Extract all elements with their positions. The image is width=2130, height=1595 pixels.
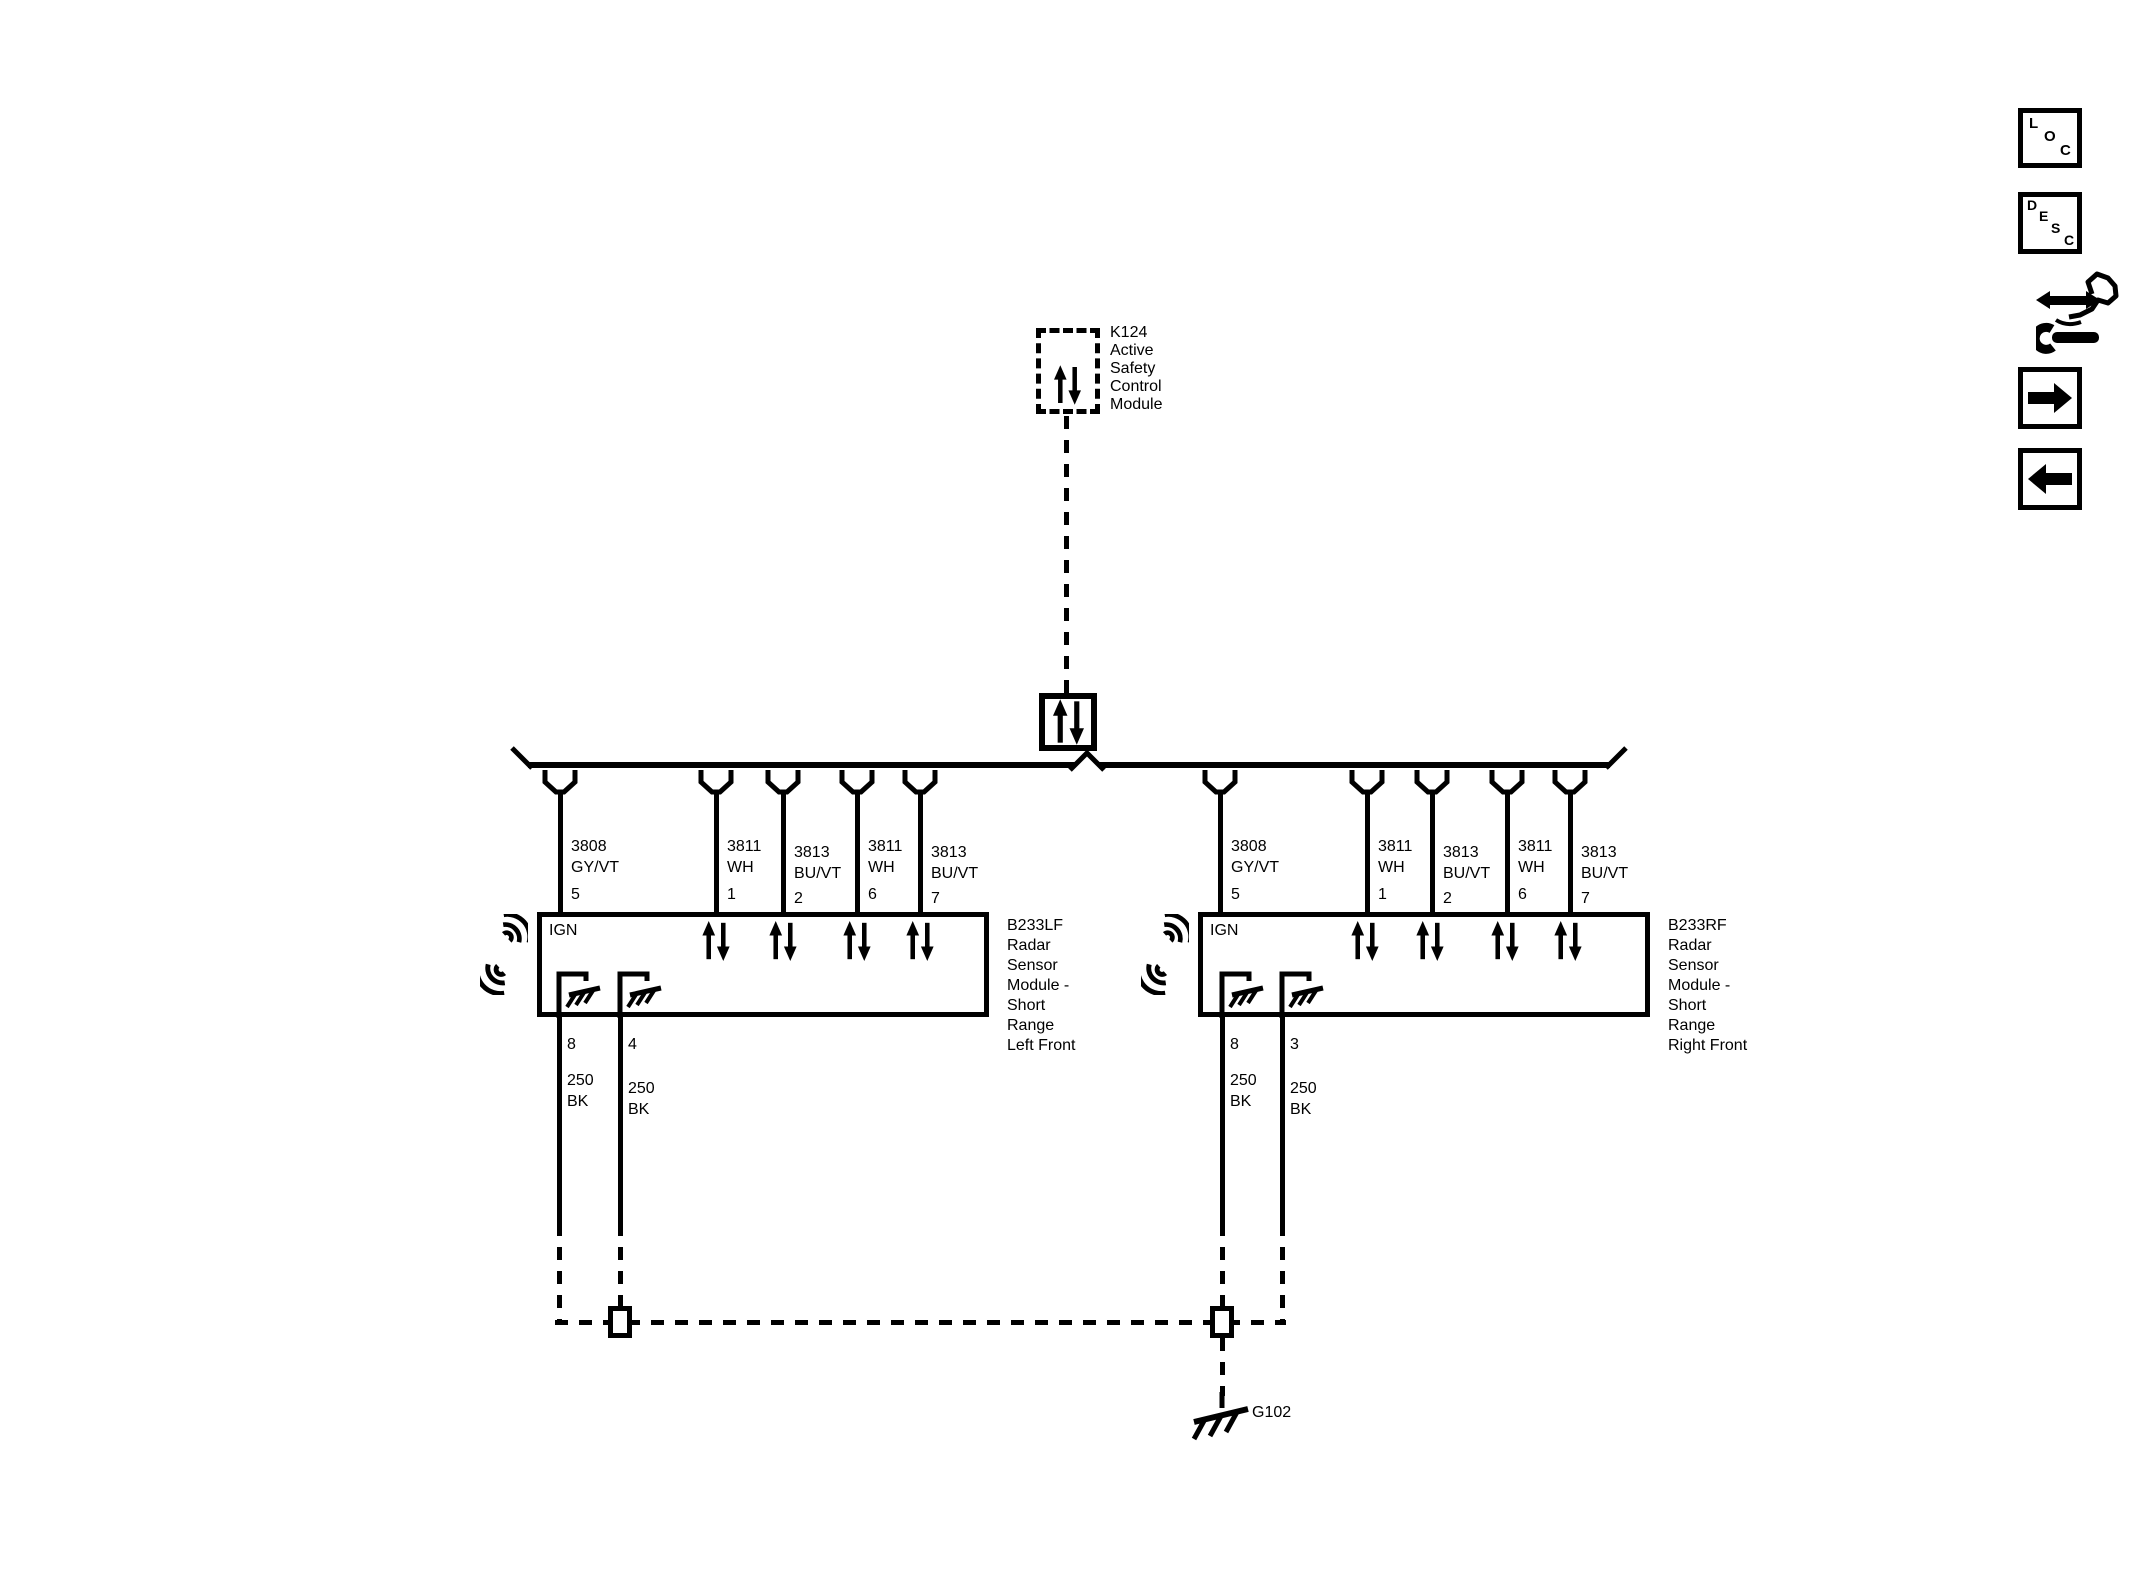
desc-letter: S <box>2051 221 2060 236</box>
loc-letter: O <box>2044 129 2056 144</box>
wire-label: 250 BK <box>567 1070 594 1112</box>
updown-arrows-icon <box>1351 921 1379 961</box>
radar-waves-icon <box>484 914 528 954</box>
wire-label: 3813 BU/VT <box>794 842 841 884</box>
wire-rf-pin7 <box>1568 794 1573 912</box>
loc-letter: C <box>2060 143 2071 158</box>
wire-label: 3808 GY/VT <box>571 836 619 878</box>
radar-waves-icon <box>1145 914 1189 954</box>
desc-button[interactable]: D E S C <box>2018 192 2082 254</box>
connector-drop-icon <box>542 770 578 796</box>
ground-label: G102 <box>1252 1402 1291 1423</box>
pin-number: 2 <box>794 890 803 908</box>
wire-label: 3811 WH <box>1378 836 1412 878</box>
pin-number: 8 <box>567 1036 576 1054</box>
wire-label: 3808 GY/VT <box>1231 836 1279 878</box>
wire-lf-pin1 <box>714 794 719 912</box>
connector-drop-icon <box>765 770 801 796</box>
connector-drop-icon <box>902 770 938 796</box>
pin-number: 1 <box>727 886 736 904</box>
previous-diagram-button[interactable] <box>2018 448 2082 510</box>
pin-number: 7 <box>931 890 940 908</box>
wire-lf-pin5 <box>558 794 563 912</box>
wire-label: 3813 BU/VT <box>1443 842 1490 884</box>
wire-label: 3811 WH <box>868 836 902 878</box>
bus-junction-caret <box>1068 750 1106 772</box>
connector-drop-icon <box>1349 770 1385 796</box>
internal-ground-icon <box>555 968 601 1018</box>
pin-number: 1 <box>1378 886 1387 904</box>
updown-arrows-icon <box>769 921 797 961</box>
loc-button[interactable]: L O C <box>2018 108 2082 168</box>
pin-number: 8 <box>1230 1036 1239 1054</box>
loc-letter: L <box>2029 116 2038 131</box>
pin-number: 5 <box>1231 886 1240 904</box>
wire-label: 3811 WH <box>727 836 761 878</box>
updown-arrows-icon <box>1053 698 1084 746</box>
desc-letter: E <box>2039 209 2048 224</box>
connector-drop-icon <box>1552 770 1588 796</box>
ground-splice[interactable] <box>608 1306 632 1338</box>
wire-label: 3813 BU/VT <box>931 842 978 884</box>
wire-lf-pin6 <box>855 794 860 912</box>
internal-ground-icon <box>616 968 662 1018</box>
wire-lf-pin7 <box>918 794 923 912</box>
updown-arrows-icon <box>702 921 730 961</box>
desc-letter: D <box>2027 198 2037 213</box>
connector-drop-icon <box>698 770 734 796</box>
wire-lf-pin8 <box>557 1015 562 1223</box>
repair-instructions-icon[interactable] <box>2036 270 2120 354</box>
wire-label: 250 BK <box>1230 1070 1257 1112</box>
wire-rf-pin6 <box>1505 794 1510 912</box>
ground-bus-dashed <box>555 1320 1286 1325</box>
wire-rf-pin8 <box>1220 1015 1225 1223</box>
pin-number: 3 <box>1290 1036 1299 1054</box>
connector-drop-icon <box>1414 770 1450 796</box>
wire-label: 3811 WH <box>1518 836 1552 878</box>
b233rf-label: B233RF Radar Sensor Module - Short Range… <box>1668 916 1747 1056</box>
pin-number: 2 <box>1443 890 1452 908</box>
updown-arrows-icon <box>1491 921 1519 961</box>
connector-drop-icon <box>839 770 875 796</box>
chassis-ground-icon[interactable] <box>1190 1392 1254 1444</box>
pin-number: 5 <box>571 886 580 904</box>
wire-label: 3813 BU/VT <box>1581 842 1628 884</box>
ign-label: IGN <box>1210 920 1238 941</box>
k124-dashed-wire <box>1064 416 1069 694</box>
updown-arrows-icon <box>1554 921 1582 961</box>
connector-drop-icon <box>1202 770 1238 796</box>
next-diagram-button[interactable] <box>2018 367 2082 429</box>
right-arrow-icon <box>2028 383 2072 413</box>
internal-ground-icon <box>1218 968 1264 1018</box>
wire-rf-pin5 <box>1218 794 1223 912</box>
b233lf-label: B233LF Radar Sensor Module - Short Range… <box>1007 916 1075 1056</box>
wire-rf-pin3 <box>1280 1015 1285 1223</box>
ground-drop-dashed <box>1220 1338 1225 1396</box>
ground-splice[interactable] <box>1210 1306 1234 1338</box>
pin-number: 4 <box>628 1036 637 1054</box>
wire-lf-pin8-dashed <box>557 1223 562 1322</box>
wire-lf-pin2 <box>781 794 786 912</box>
updown-arrows-icon <box>906 921 934 961</box>
wire-rf-pin1 <box>1365 794 1370 912</box>
pin-number: 7 <box>1581 890 1590 908</box>
internal-ground-icon <box>1278 968 1324 1018</box>
radar-waves-icon <box>1141 953 1185 995</box>
ign-label: IGN <box>549 920 577 941</box>
updown-arrows-icon <box>1416 921 1444 961</box>
wire-label: 250 BK <box>628 1078 655 1120</box>
wire-lf-pin4-dashed <box>618 1223 623 1308</box>
updown-arrows-icon <box>843 921 871 961</box>
radar-waves-icon <box>480 953 524 995</box>
pin-number: 6 <box>1518 886 1527 904</box>
wire-lf-pin4 <box>618 1015 623 1223</box>
wire-rf-pin3-dashed <box>1280 1223 1285 1322</box>
wiring-diagram-page: K124 Active Safety Control Module 3808 G… <box>0 0 2130 1595</box>
bus-end-tick-left <box>508 744 534 770</box>
connector-drop-icon <box>1489 770 1525 796</box>
updown-arrows-icon <box>1054 364 1081 406</box>
left-arrow-icon <box>2028 464 2072 494</box>
wire-label: 250 BK <box>1290 1078 1317 1120</box>
pin-number: 6 <box>868 886 877 904</box>
wire-rf-pin8-dashed <box>1220 1223 1225 1308</box>
bus-end-tick-right <box>1604 744 1630 770</box>
desc-letter: C <box>2064 233 2074 248</box>
wire-rf-pin2 <box>1430 794 1435 912</box>
k124-label: K124 Active Safety Control Module <box>1110 324 1162 414</box>
